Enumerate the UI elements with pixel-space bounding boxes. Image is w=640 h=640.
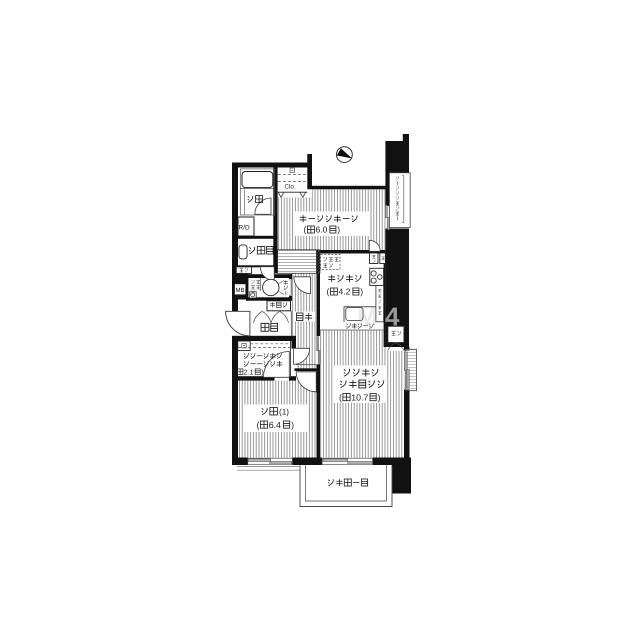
svg-text:4: 4 (385, 302, 400, 332)
svg-text:): ) (291, 420, 294, 430)
svg-text:(: ( (257, 420, 260, 430)
svg-text:R/D: R/D (239, 225, 251, 232)
svg-text:MB: MB (236, 287, 245, 294)
svg-text:6.4: 6.4 (269, 420, 281, 430)
svg-text:): ) (378, 392, 381, 402)
svg-text:6.0: 6.0 (316, 225, 328, 235)
svg-text:(: ( (304, 225, 307, 235)
svg-text:10.7: 10.7 (351, 392, 368, 402)
svg-text:): ) (360, 287, 363, 297)
svg-text:Clo.: Clo. (285, 184, 296, 191)
svg-text:(: ( (339, 392, 342, 402)
svg-text:2.1: 2.1 (244, 370, 254, 377)
svg-text:4.2: 4.2 (339, 287, 351, 297)
svg-text:(: ( (327, 287, 330, 297)
svg-text:(1): (1) (279, 407, 289, 416)
svg-text:): ) (261, 369, 263, 377)
svg-text:): ) (337, 225, 340, 235)
